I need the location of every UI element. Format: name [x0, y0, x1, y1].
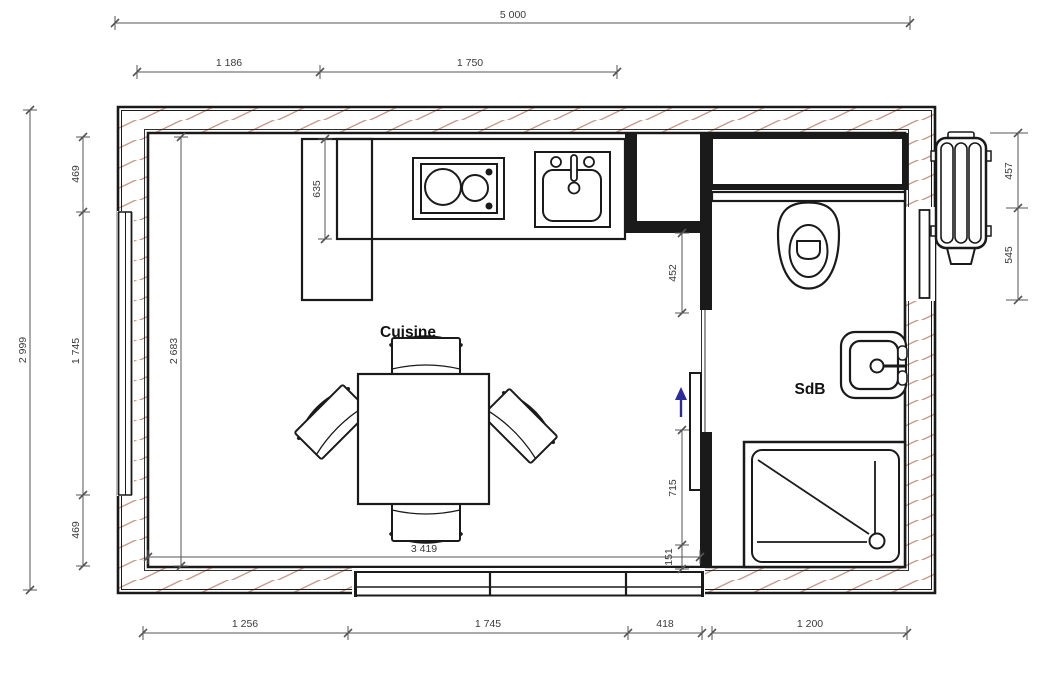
partition-wall — [700, 133, 712, 567]
svg-text:545: 545 — [1003, 246, 1015, 264]
svg-text:1 200: 1 200 — [797, 618, 823, 630]
dim-right-chain: 457 545 — [990, 129, 1028, 304]
svg-text:2 683: 2 683 — [168, 338, 180, 364]
closet — [625, 133, 712, 233]
svg-text:1 745: 1 745 — [475, 618, 501, 630]
cooktop — [413, 158, 504, 219]
floor-plan: 5 000 1 186 1 750 2 999 469 1 745 469 2 … — [0, 0, 1045, 674]
svg-text:452: 452 — [667, 264, 679, 282]
dim-counter-depth: 635 — [311, 135, 332, 243]
sliding-door-leaf — [690, 373, 701, 490]
dim-left-overall: 2 999 — [17, 106, 37, 594]
kitchen-sink — [535, 152, 610, 227]
svg-text:1 256: 1 256 — [232, 618, 258, 630]
dim-door-opening: 715 — [667, 426, 689, 549]
svg-text:635: 635 — [311, 180, 323, 198]
dim-top-overall: 5 000 — [111, 9, 914, 30]
svg-text:715: 715 — [667, 479, 679, 497]
shower — [744, 442, 905, 567]
entry-arrow-icon — [675, 387, 687, 417]
svg-text:5 000: 5 000 — [500, 9, 526, 21]
dim-bottom-chain: 1 256 1 745 418 — [139, 618, 706, 640]
dim-top-chain: 1 186 1 750 — [133, 57, 621, 79]
svg-text:418: 418 — [656, 618, 674, 630]
bathroom-bulkhead — [710, 136, 905, 187]
right-door-leaf — [920, 210, 930, 298]
dim-bottom-right: 1 200 — [708, 618, 911, 640]
svg-text:457: 457 — [1003, 162, 1015, 180]
chair — [391, 503, 461, 542]
toilet — [778, 203, 839, 289]
dim-interior-width: 3 419 — [144, 543, 704, 564]
dim-left-chain: 469 1 745 469 — [70, 133, 90, 570]
left-window — [117, 211, 134, 496]
svg-text:2 999: 2 999 — [17, 337, 29, 363]
svg-text:469: 469 — [70, 165, 82, 183]
chair — [391, 337, 461, 376]
svg-text:3 419: 3 419 — [411, 543, 437, 555]
dining-table — [358, 374, 489, 504]
svg-text:1 745: 1 745 — [70, 338, 82, 364]
bathroom-north-wall — [712, 192, 905, 201]
washbasin — [841, 332, 907, 398]
dining-set — [293, 337, 559, 542]
bottom-window — [352, 568, 705, 597]
dim-interior-height: 2 683 — [168, 133, 188, 570]
right-door-opening — [906, 207, 935, 301]
chair — [482, 387, 559, 464]
svg-text:1 186: 1 186 — [216, 57, 242, 69]
svg-text:1 750: 1 750 — [457, 57, 483, 69]
dim-partition-top: 452 — [667, 229, 689, 317]
water-heater — [931, 132, 991, 264]
kitchen-label: Cuisine — [380, 324, 436, 341]
svg-text:469: 469 — [70, 521, 82, 539]
bathroom-label: SdB — [795, 381, 826, 398]
